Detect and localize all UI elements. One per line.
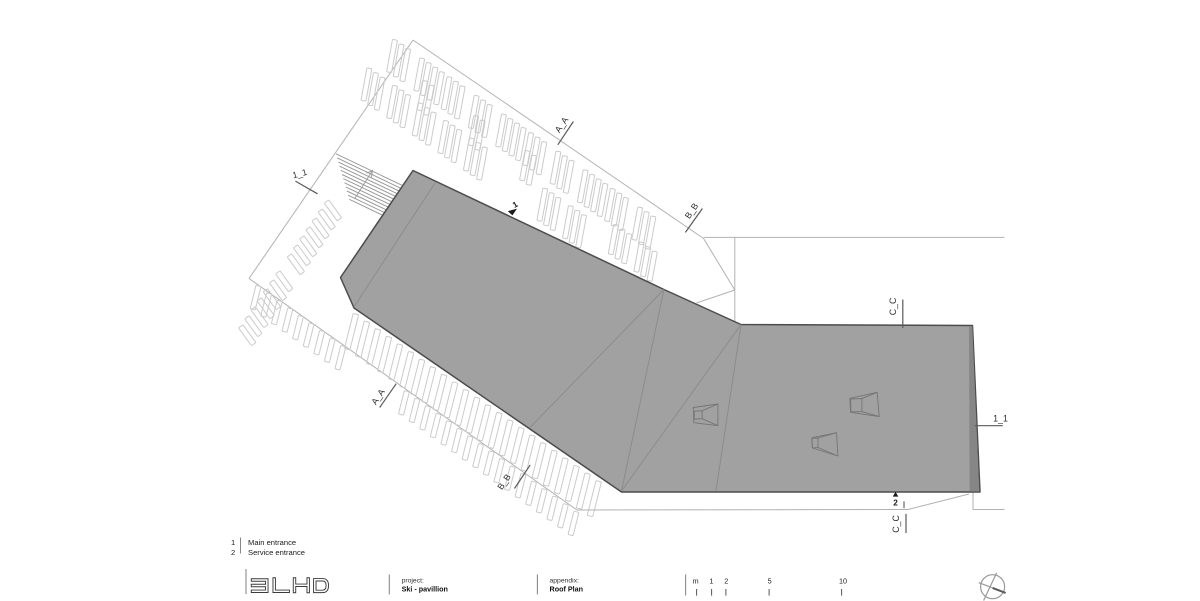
svg-text:appendix:: appendix:: [550, 578, 580, 585]
svg-text:1: 1: [231, 538, 235, 547]
svg-text:2: 2: [231, 548, 235, 557]
svg-text:project:: project:: [402, 578, 424, 585]
svg-text:Roof Plan: Roof Plan: [550, 585, 584, 594]
svg-text:1_1: 1_1: [291, 167, 308, 180]
svg-text:C_C: C_C: [888, 297, 898, 315]
svg-text:1: 1: [709, 577, 713, 586]
svg-text:5: 5: [768, 577, 772, 586]
svg-text:10: 10: [839, 577, 847, 586]
svg-text:2: 2: [724, 577, 728, 586]
svg-text:C_C: C_C: [891, 515, 901, 533]
svg-text:B_B: B_B: [683, 201, 701, 220]
svg-text:2: 2: [893, 499, 898, 508]
svg-text:A_A: A_A: [553, 115, 571, 134]
svg-text:Ski - pavillion: Ski - pavillion: [402, 585, 448, 594]
svg-text:1: 1: [511, 200, 520, 210]
svg-text:Service entrance: Service entrance: [248, 548, 305, 557]
svg-text:Main entrance: Main entrance: [248, 538, 296, 547]
svg-text:A_A: A_A: [369, 387, 387, 406]
svg-text:1_1: 1_1: [993, 414, 1008, 424]
svg-text:m: m: [693, 577, 699, 586]
